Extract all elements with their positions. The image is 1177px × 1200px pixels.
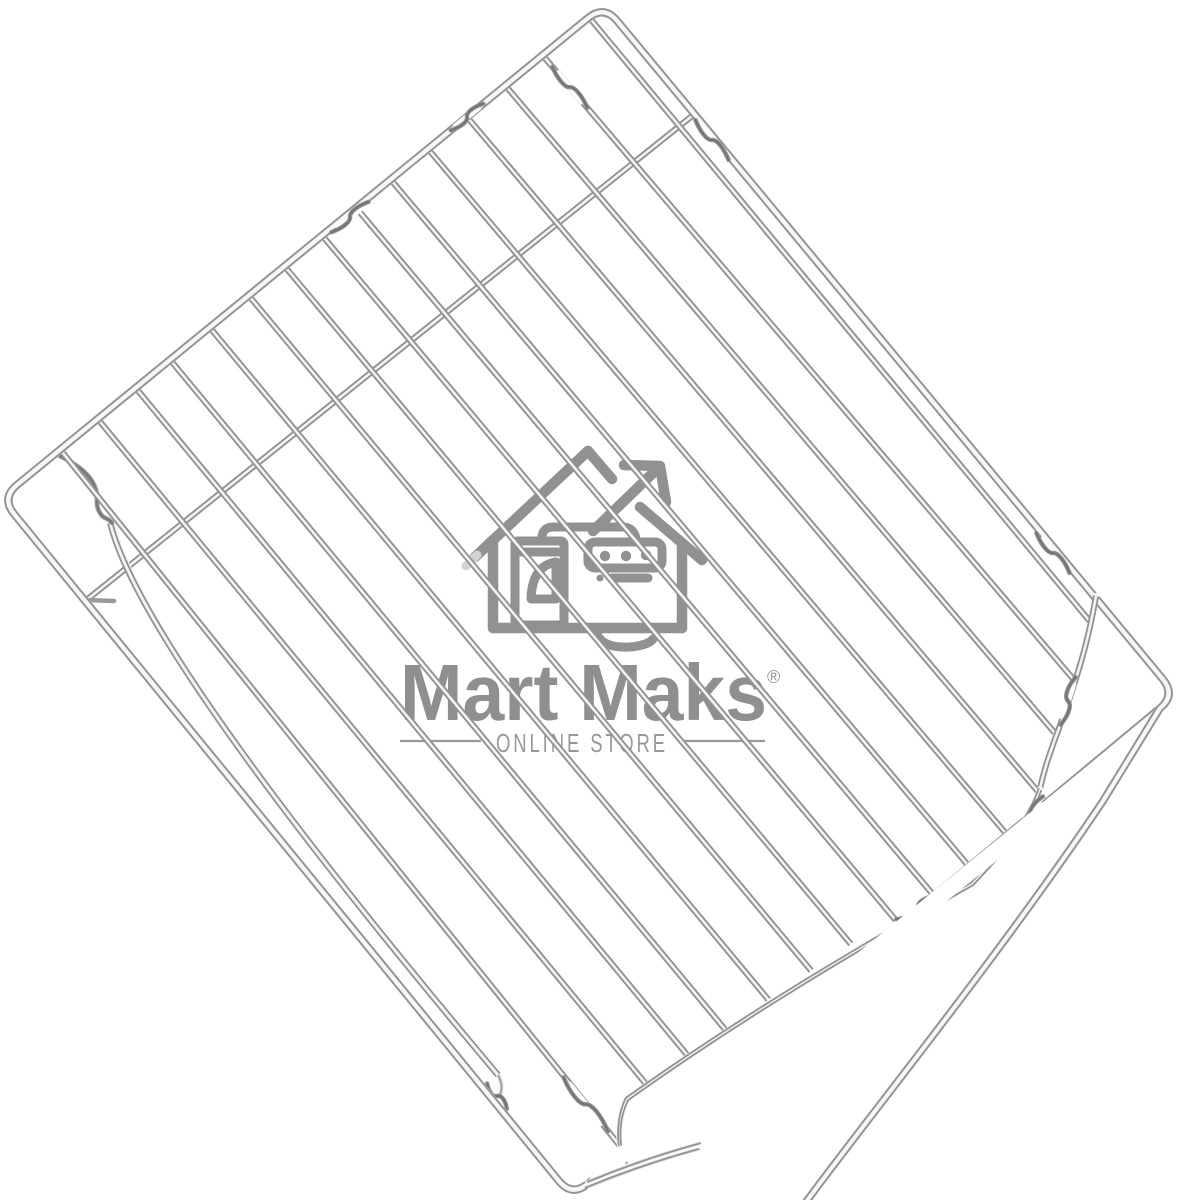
svg-text:Mart Maks: Mart Maks (400, 648, 767, 737)
svg-text:®: ® (767, 667, 780, 687)
svg-text:ONLINE STORE: ONLINE STORE (496, 730, 668, 758)
